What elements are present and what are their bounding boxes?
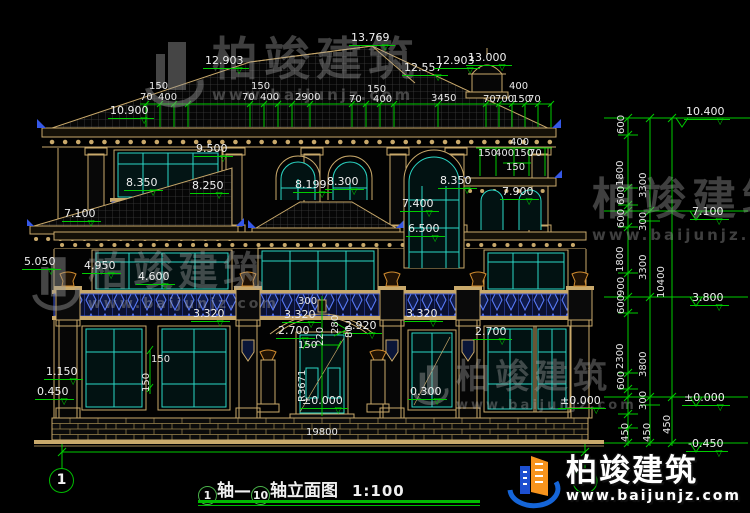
elevation-value: 7.100 (62, 208, 101, 222)
dimension-label: 80 (344, 325, 355, 338)
elevation-marker: 2.700▽ (276, 319, 315, 339)
elevation-marker: 10.400▽ (684, 100, 730, 120)
title-suffix: 轴立面图 (270, 481, 338, 501)
elevation-marker: 8.250▽ (190, 174, 229, 194)
dimension-label: 300 (298, 296, 317, 307)
axis-bubble-1: 1 (49, 468, 74, 493)
elevation-triangle-icon: ▽ (216, 192, 223, 200)
elevation-triangle-icon: ▽ (220, 155, 227, 163)
dimension-label: 900 (616, 277, 627, 296)
elevation-marker: 8.350▽ (438, 169, 477, 189)
elevation-triangle-icon: ▽ (335, 407, 342, 415)
elevation-value: 9.500 (194, 143, 233, 157)
elevation-value: 7.400 (400, 198, 439, 212)
dimension-label: 400 (510, 137, 529, 148)
elevation-triangle-icon: ▽ (48, 268, 55, 276)
elevation-value: 8.300 (325, 176, 364, 190)
elevation-triangle-icon: ▽ (434, 398, 441, 406)
dimension-label: 600 (616, 371, 627, 390)
dimension-label: 300 (638, 212, 649, 231)
elevation-value: 8.350 (124, 177, 163, 191)
elevation-triangle-icon: ▽ (141, 117, 148, 125)
elevation-marker: 7.900▽ (500, 180, 539, 200)
elevation-triangle-icon: ▽ (430, 320, 437, 328)
dimension-label: 450 (642, 423, 653, 442)
dimension-label: 70 (242, 92, 255, 103)
dimension-label: 1800 (615, 161, 626, 186)
elevation-triangle-icon: ▽ (108, 272, 115, 280)
dimension-label: 3800 (638, 352, 649, 377)
dimension-label: 3450 (431, 93, 456, 104)
dimension-label: 600 (616, 186, 627, 205)
elevation-triangle-icon: ▽ (88, 220, 95, 228)
elevation-marker: 5.050▽ (22, 250, 61, 270)
elevation-marker: 1.150▽ (44, 360, 83, 380)
footer-brand: 柏竣建筑 www.baijunjz.com (504, 448, 750, 511)
dimension-label: 1800 (615, 247, 626, 272)
dimension-label: 450 (620, 423, 631, 442)
elevation-value: 0.450 (35, 386, 74, 400)
elevation-marker: 9.500▽ (194, 137, 233, 157)
elevation-marker: ±0.000▽ (558, 389, 606, 409)
dimension-label: 400 (260, 92, 279, 103)
elevation-value: 8.350 (438, 175, 477, 189)
dimension-label: 70 (483, 94, 496, 105)
elevation-triangle-icon: ▽ (716, 304, 723, 312)
drawing-title: 1轴—10轴立面图1:100 (198, 476, 498, 505)
dimension-label: 150 (149, 81, 168, 92)
dimension-label: 150 (141, 373, 152, 392)
dimension-label: R3671 (297, 370, 308, 402)
elevation-triangle-icon: ▽ (717, 118, 724, 126)
elevation-value: 5.050 (22, 256, 61, 270)
elevation-triangle-icon: ▽ (61, 398, 68, 406)
elevation-value: 6.500 (406, 223, 445, 237)
elevation-triangle-icon: ▽ (217, 320, 224, 328)
elevation-marker: 4.950▽ (82, 254, 121, 274)
dimension-label: 2900 (295, 92, 320, 103)
elevation-marker: ±0.000▽ (682, 386, 730, 406)
elevation-marker: 3.320▽ (191, 302, 230, 322)
title-axis-sep: 轴— (217, 481, 251, 501)
elevation-triangle-icon: ▽ (382, 44, 389, 52)
dimension-label: 300 (638, 391, 649, 410)
elevation-triangle-icon: ▽ (467, 67, 474, 75)
elevation-triangle-icon: ▽ (464, 187, 471, 195)
title-underline (198, 500, 480, 503)
elevation-marker: 3.800▽ (690, 286, 729, 306)
dimension-label: 400 (373, 94, 392, 105)
elevation-value: 3.800 (690, 292, 729, 306)
axis-bubble-1-label: 1 (57, 472, 67, 488)
elevation-triangle-icon: ▽ (150, 189, 157, 197)
dimension-label: 2300 (615, 344, 626, 369)
footer-brand-url: www.baijunjz.com (566, 488, 741, 504)
elevation-marker: 13.000▽ (466, 46, 512, 66)
dimension-label: 600 (616, 295, 627, 314)
dimension-label: 19800 (306, 427, 338, 438)
elevation-value: 1.150 (44, 366, 83, 380)
elevation-value: 3.320 (404, 308, 443, 322)
elevation-value: 2.700 (276, 325, 315, 339)
elevation-marker: 0.300▽ (408, 380, 447, 400)
elevation-triangle-icon: ▽ (499, 64, 506, 72)
elevation-value: 7.100 (690, 206, 729, 220)
dimension-label: 450 (662, 415, 673, 434)
elevation-triangle-icon: ▽ (435, 74, 442, 82)
title-underline-thin (198, 505, 480, 506)
elevation-marker: 7.400▽ (400, 192, 439, 212)
labels-layer: 13.769▽12.903▽12.557▽12.903▽13.000▽10.90… (0, 0, 750, 513)
cad-canvas: 柏竣建筑 www.baijunjz.com 柏竣建筑 www.baijunjz.… (0, 0, 750, 513)
elevation-triangle-icon: ▽ (526, 198, 533, 206)
elevation-value: 7.900 (500, 186, 539, 200)
elevation-value: 4.600 (136, 271, 175, 285)
dimension-label: 150 (151, 354, 170, 365)
elevation-marker: 4.600▽ (136, 265, 175, 285)
elevation-marker: 3.320▽ (404, 302, 443, 322)
dimension-label: 70 (140, 92, 153, 103)
dimension-label: 600 (616, 209, 627, 228)
dimension-label: 400 (158, 92, 177, 103)
elevation-marker: 7.100▽ (62, 202, 101, 222)
elevation-triangle-icon: ▽ (432, 235, 439, 243)
dimension-label: 70 (529, 148, 542, 159)
elevation-marker: 8.300▽ (325, 170, 364, 190)
elevation-marker: 12.903▽ (203, 49, 249, 69)
elevation-value: 0.300 (408, 386, 447, 400)
elevation-triangle-icon: ▽ (593, 407, 600, 415)
dimension-label: 220 (315, 327, 326, 346)
dimension-label: 70 (528, 94, 541, 105)
dimension-label: 3300 (638, 255, 649, 280)
elevation-value: 8.250 (190, 180, 229, 194)
title-scale: 1:100 (352, 482, 405, 500)
elevation-triangle-icon: ▽ (162, 283, 169, 291)
dimension-label: 400 (509, 81, 528, 92)
elevation-marker: 7.100▽ (690, 200, 729, 220)
dimension-label: 600 (616, 115, 627, 134)
dimension-label: 150 (251, 81, 270, 92)
dimension-label: 150 (506, 162, 525, 173)
elevation-value: 4.950 (82, 260, 121, 274)
elevation-marker: 0.450▽ (35, 380, 74, 400)
elevation-triangle-icon: ▽ (716, 218, 723, 226)
dimension-label: 3300 (638, 173, 649, 198)
elevation-marker: 8.350▽ (124, 171, 163, 191)
dimension-label: 10400 (656, 266, 667, 298)
footer-brand-name: 柏竣建筑 (566, 453, 698, 489)
elevation-value: 3.320 (191, 308, 230, 322)
dimension-label: 400 (495, 148, 514, 159)
elevation-triangle-icon: ▽ (351, 188, 358, 196)
elevation-triangle-icon: ▽ (499, 338, 506, 346)
elevation-triangle-icon: ▽ (319, 191, 326, 199)
footer-logo-icon (504, 450, 562, 510)
dimension-label: 70 (349, 94, 362, 105)
elevation-triangle-icon: ▽ (717, 404, 724, 412)
elevation-marker: 2.700▽ (473, 320, 512, 340)
elevation-marker: 6.500▽ (406, 217, 445, 237)
elevation-triangle-icon: ▽ (369, 332, 376, 340)
elevation-marker: 13.769▽ (349, 26, 395, 46)
dimension-label: 280 (330, 315, 341, 334)
elevation-value: 2.700 (473, 326, 512, 340)
elevation-triangle-icon: ▽ (236, 67, 243, 75)
